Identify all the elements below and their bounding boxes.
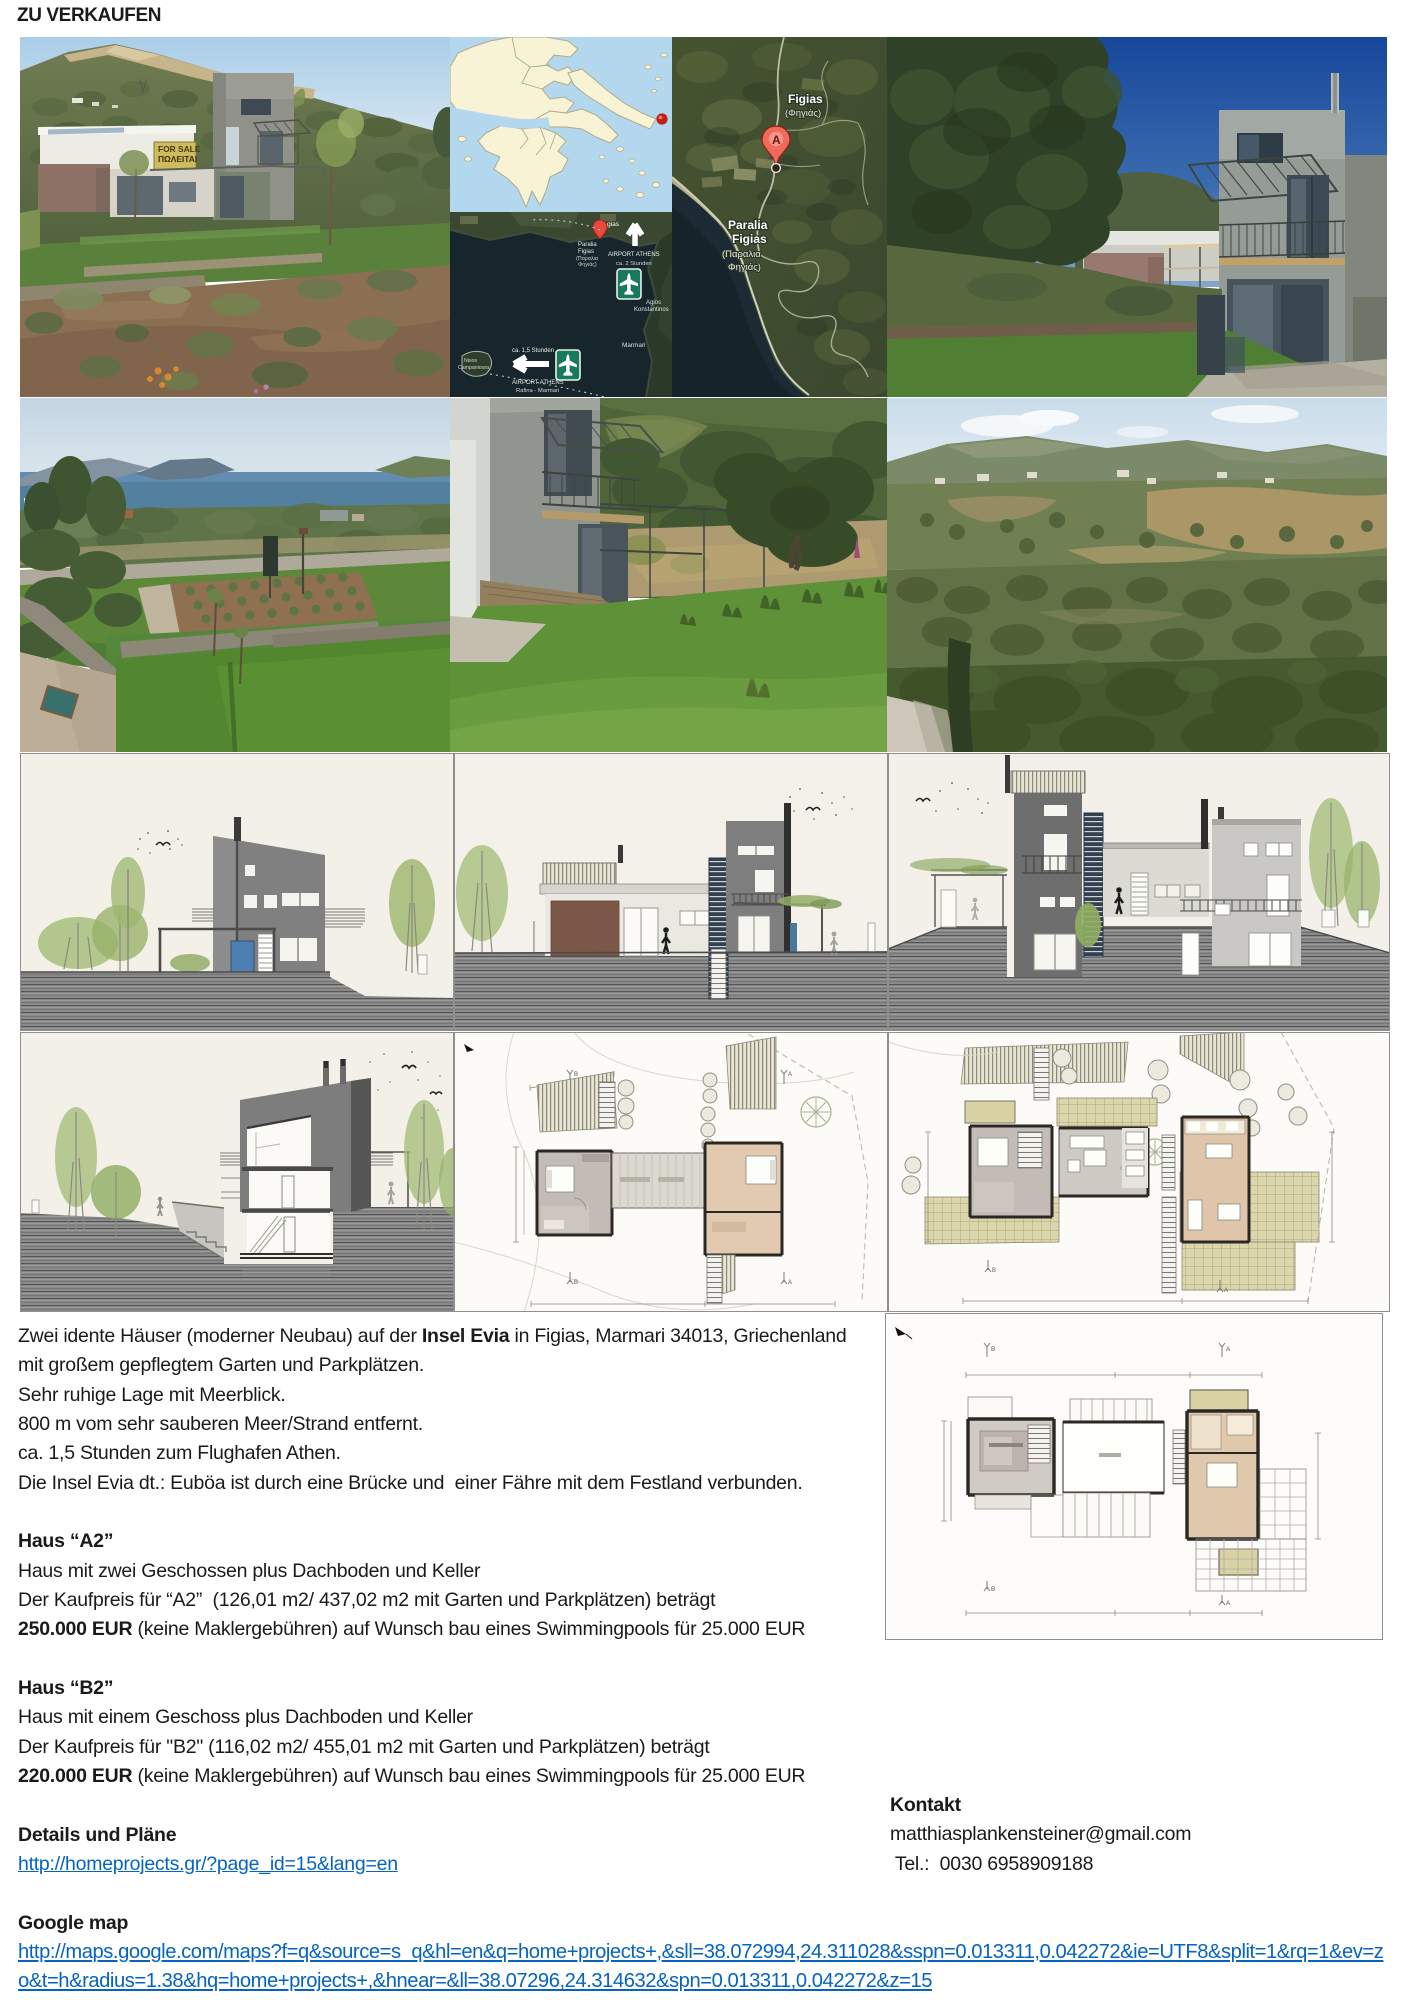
svg-text:ca. 2 Stunden: ca. 2 Stunden (616, 261, 652, 267)
svg-text:Paralia: Paralia (578, 242, 597, 248)
svg-text:B: B (992, 1268, 996, 1274)
svg-text:(Παραλια: (Παραλια (722, 249, 761, 260)
svg-text:Figias: Figias (732, 232, 767, 246)
svg-text:(Φηγιάς): (Φηγιάς) (785, 108, 821, 119)
svg-text:Φηγιάς): Φηγιάς) (578, 261, 597, 268)
svg-text:gias: gias (607, 221, 620, 228)
svg-text:Konstantinos: Konstantinos (634, 307, 669, 313)
svg-text:Figias: Figias (578, 249, 594, 255)
svg-text:AIRPORT ATHENS: AIRPORT ATHENS (608, 252, 660, 258)
svg-text:A: A (772, 133, 781, 147)
svg-text:A: A (1224, 1288, 1228, 1294)
svg-text:Nisos: Nisos (464, 358, 477, 364)
svg-text:AIRPORT ATHENS: AIRPORT ATHENS (512, 380, 564, 386)
svg-text:A: A (788, 1072, 792, 1078)
svg-text:Figias: Figias (788, 92, 823, 106)
svg-text:ca. 1,5 Stunden: ca. 1,5 Stunden (512, 348, 554, 354)
svg-text:Paralia: Paralia (728, 218, 768, 232)
svg-text:FOR SALE: FOR SALE (158, 144, 201, 154)
svg-text:Rafina - Marmari: Rafina - Marmari (516, 388, 559, 394)
svg-text:B: B (574, 1280, 578, 1286)
svg-text:Φηγιάς): Φηγιάς) (728, 262, 761, 273)
svg-text:Agios: Agios (646, 300, 661, 306)
svg-text:Campanioura: Campanioura (458, 365, 489, 371)
svg-text:B: B (574, 1072, 578, 1078)
svg-text:ΠΩΛΕΙΤΑΙ: ΠΩΛΕΙΤΑΙ (158, 154, 197, 164)
svg-text:Marmari: Marmari (622, 342, 645, 349)
svg-text:A: A (788, 1280, 792, 1286)
